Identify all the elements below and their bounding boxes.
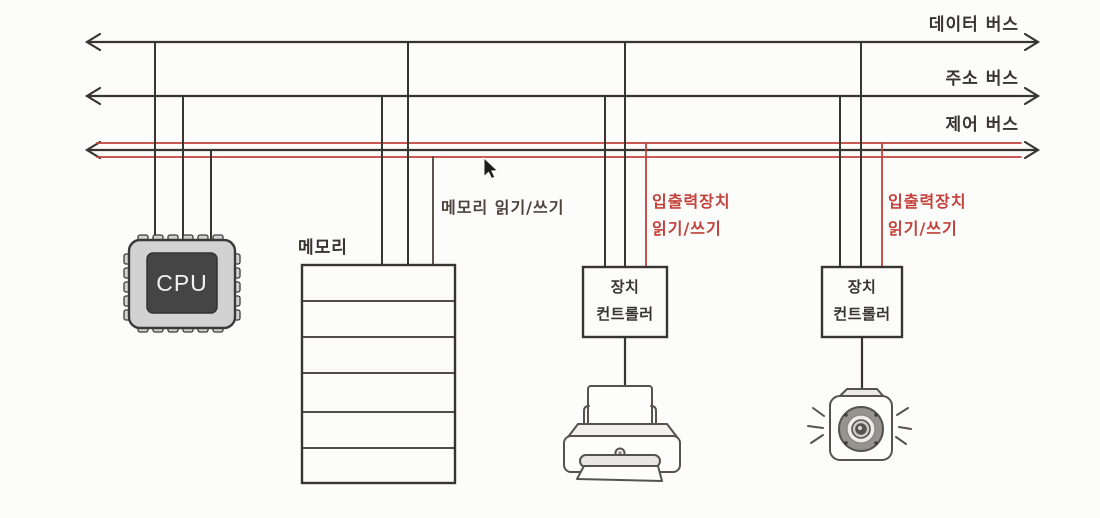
- memory-label: 메모리: [298, 233, 348, 258]
- io-rw-annotation-2: 입출력장치 읽기/쓰기: [888, 188, 967, 242]
- cpu-bus-connectors: [155, 43, 211, 239]
- bus-architecture-diagram: 데이터 버스 주소 버스 제어 버스 CPU 메모리 메모리 읽기/쓰기 입출력…: [0, 0, 1100, 518]
- device-controller-2-label: 장치 컨트롤러: [822, 274, 902, 328]
- device-controller-2-label-line2: 컨트롤러: [822, 301, 902, 328]
- data-bus-label: 데이터 버스: [924, 10, 1019, 35]
- io-rw-annotation-1: 입출력장치 읽기/쓰기: [652, 188, 731, 242]
- io-rw-annotation-2-line1: 입출력장치: [888, 188, 967, 215]
- controller1-bus-connectors: [605, 43, 625, 267]
- printer-output-paper: [577, 466, 662, 481]
- camera-icon: [808, 389, 911, 460]
- address-bus-label: 주소 버스: [924, 64, 1019, 89]
- address-bus-line: [87, 88, 1038, 104]
- io-rw-annotation-1-line2: 읽기/쓰기: [652, 215, 731, 242]
- device-controller-1-label: 장치 컨트롤러: [583, 274, 667, 328]
- printer-icon: [564, 386, 680, 481]
- io-rw-annotation-1-line1: 입출력장치: [652, 188, 731, 215]
- mouse-cursor: [484, 158, 498, 179]
- memory-bus-connectors: [382, 43, 408, 265]
- data-bus-line: [87, 34, 1038, 50]
- memory-box: [302, 265, 455, 483]
- cpu-label: CPU: [147, 253, 217, 313]
- device-controller-1-label-line1: 장치: [583, 274, 667, 301]
- device-controller-2-label-line1: 장치: [822, 274, 902, 301]
- printer-paper: [588, 386, 652, 428]
- controller2-bus-connectors: [840, 43, 861, 267]
- device-controller-1-label-line2: 컨트롤러: [583, 301, 667, 328]
- memory-rw-annotation: 메모리 읽기/쓰기: [441, 194, 564, 221]
- control-bus-label: 제어 버스: [924, 110, 1019, 135]
- io-rw-annotation-2-line2: 읽기/쓰기: [888, 215, 967, 242]
- control-bus-line: [87, 142, 1038, 158]
